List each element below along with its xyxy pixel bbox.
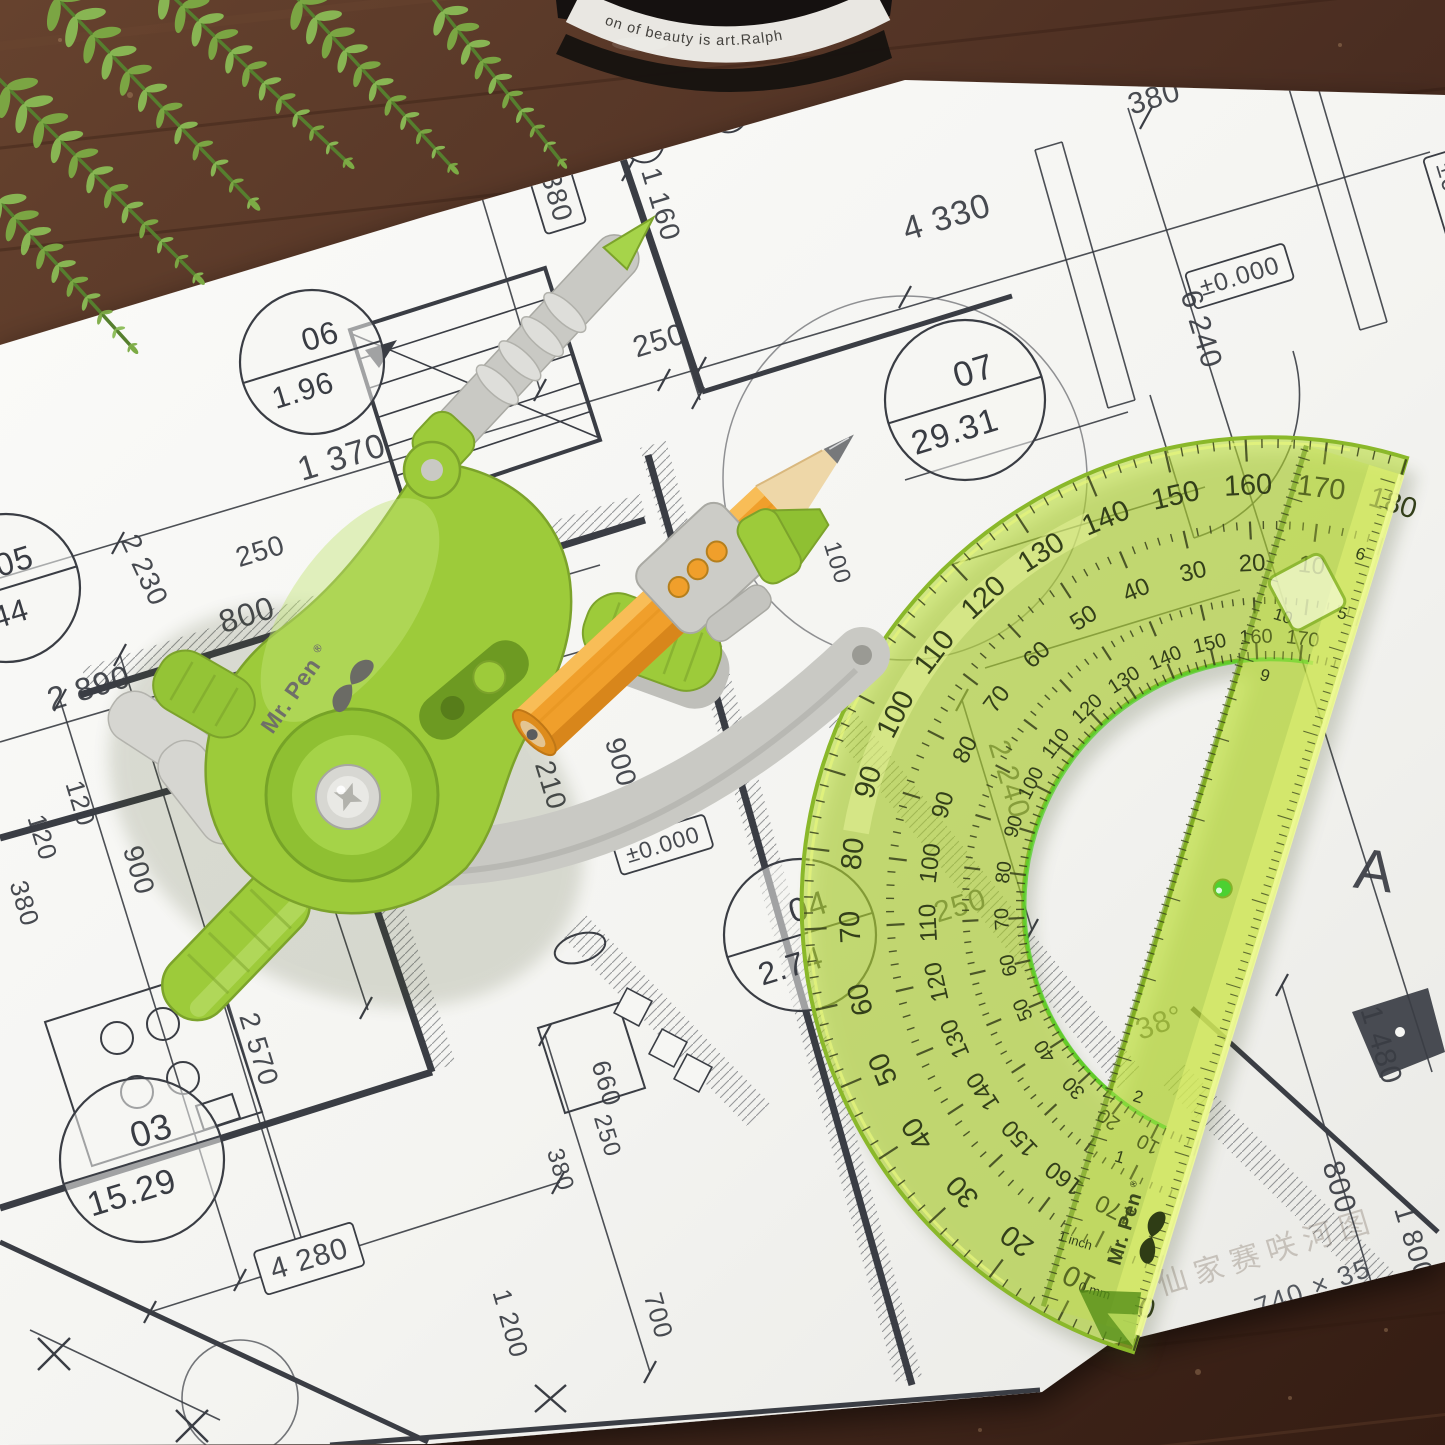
protractor-scale-number: 160 — [1223, 468, 1273, 502]
protractor-tick — [1237, 522, 1238, 530]
product-photo-scene: on of beauty is art.Ralph 仙家赛咲河图 740 × 3… — [0, 0, 1445, 1445]
protractor-tick — [964, 942, 971, 943]
protractor-tick — [1250, 522, 1251, 540]
protractor-tick — [1017, 883, 1025, 884]
protractor-tick — [806, 864, 815, 865]
wood-speckle — [1384, 1328, 1388, 1332]
wood-speckle — [978, 1428, 982, 1432]
protractor-tick — [889, 951, 897, 952]
section-marker-dot — [1395, 1027, 1405, 1037]
protractor-scale-number: 20 — [1238, 549, 1266, 577]
protractor-tick — [1229, 441, 1230, 450]
protractor-tick — [962, 920, 978, 921]
protractor-tick — [1232, 599, 1233, 606]
protractor-scale-number: 80 — [835, 836, 871, 872]
protractor-tick — [1017, 926, 1025, 927]
protractor-scale-number: 110 — [914, 903, 943, 943]
protractor-tick — [805, 928, 827, 929]
protractor-tick — [963, 878, 970, 879]
screw-sparkle — [337, 786, 346, 795]
wood-speckle — [127, 92, 133, 98]
protractor-tick — [1018, 935, 1026, 936]
hinge-pin — [421, 459, 443, 481]
wood-speckle — [1288, 1396, 1292, 1400]
jar-glint — [612, 37, 668, 51]
protractor-scale-number: 70 — [991, 907, 1014, 930]
protractor-tick — [1243, 598, 1244, 605]
protractor-scale-number: 80 — [992, 860, 1017, 885]
protractor-tick — [806, 945, 815, 946]
protractor-tick — [1223, 524, 1224, 532]
wood-speckle — [58, 38, 62, 42]
protractor-tick — [887, 938, 895, 939]
protractor-scale-number: 100 — [915, 842, 947, 885]
wood-speckle — [1338, 43, 1342, 47]
protractor-tick — [887, 924, 905, 925]
quadrant-end-screw — [852, 645, 872, 665]
protractor-tick — [887, 872, 895, 873]
scene-svg: on of beauty is art.Ralph 仙家赛咲河图 740 × 3… — [0, 0, 1445, 1445]
protractor-tick — [1246, 440, 1247, 462]
protractor-tick — [963, 931, 970, 932]
wood-speckle — [1195, 1369, 1201, 1375]
protractor-scale-number: 70 — [834, 910, 868, 944]
